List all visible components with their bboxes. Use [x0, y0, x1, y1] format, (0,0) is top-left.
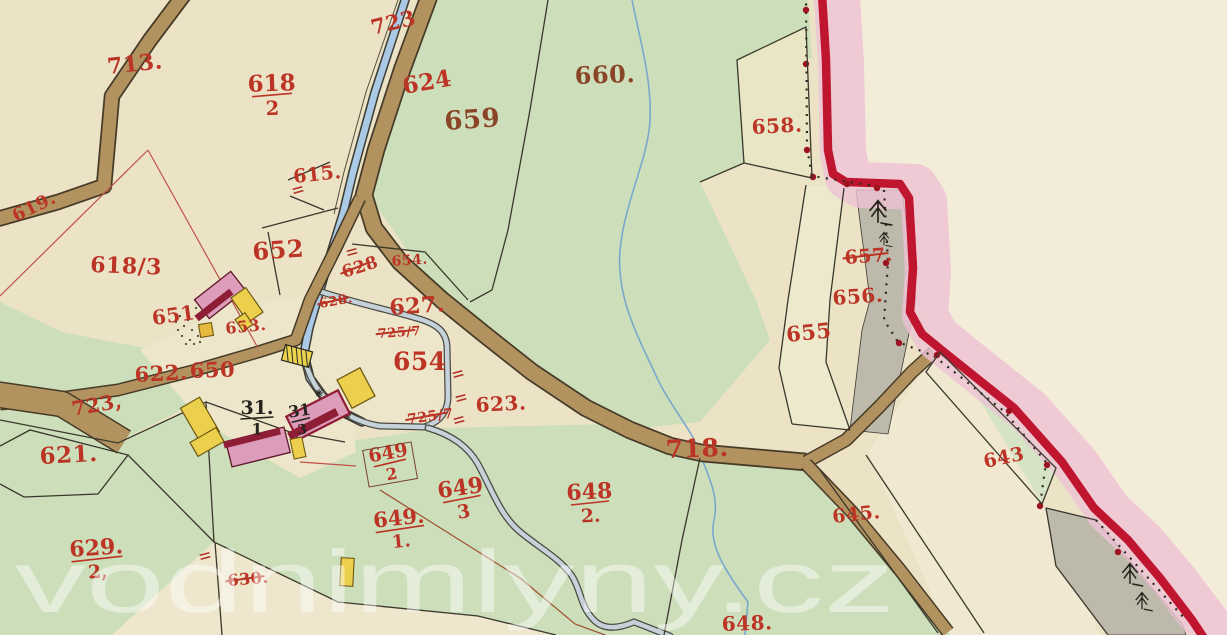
boundary-marker-dot-1 — [803, 61, 809, 67]
svg-text:622.: 622. — [134, 359, 188, 387]
svg-text:718.: 718. — [665, 433, 729, 464]
boundary-marker-dot-10 — [1044, 462, 1050, 468]
garden-stipple-dot-4 — [191, 329, 193, 331]
svg-text:656.: 656. — [832, 283, 884, 310]
svg-text:652: 652 — [251, 233, 305, 266]
svg-text:649.: 649. — [372, 502, 425, 532]
svg-text:660.: 660. — [574, 59, 635, 90]
parcel-number-red-24: 657. — [842, 244, 894, 269]
parcel-number-red-23: 655 — [785, 317, 833, 347]
parcel-number-red-15: 725/7 — [375, 324, 421, 342]
boundary-marker-dot-0 — [803, 7, 809, 13]
svg-text:2.: 2. — [580, 505, 601, 528]
map-canvas[interactable]: 713.723624619.618/3615.652651653.654.627… — [0, 0, 1227, 635]
svg-text:1: 1 — [251, 420, 262, 439]
boundary-marker-dot-12 — [1115, 549, 1121, 555]
parcel-number-red-20: 621. — [39, 440, 98, 470]
parcel-number-red-25: 658. — [751, 112, 803, 139]
garden-stipple-dot-11 — [177, 329, 179, 331]
parcel-number-red-9: 654. — [391, 252, 428, 270]
garden-stipple-dot-9 — [185, 343, 187, 345]
parcel-number-red-13: 654 — [393, 347, 447, 376]
parcel-number-red-14: 623. — [475, 390, 527, 417]
parcel-number-red-6: 652 — [251, 233, 305, 266]
boundary-marker-dot-9 — [1006, 408, 1012, 414]
boundary-marker-dot-2 — [804, 147, 810, 153]
watermark-layer: vodnimlyny.cz — [15, 532, 895, 631]
svg-text:659: 659 — [443, 103, 501, 137]
garden-stipple-dot-15 — [195, 307, 197, 309]
parcel-number-red-4: 618/3 — [90, 252, 163, 280]
svg-text:618/3: 618/3 — [90, 252, 163, 280]
svg-text:658.: 658. — [751, 112, 803, 139]
parcel-number-red-30: 659 — [443, 103, 501, 137]
svg-text:621.: 621. — [39, 440, 98, 470]
parcel-number-red-10: 627. — [389, 291, 446, 321]
svg-text:627.: 627. — [389, 291, 446, 321]
svg-text:2: 2 — [265, 97, 279, 120]
parcel-number-red-17: 622. — [134, 359, 188, 387]
garden-stipple-dot-6 — [181, 335, 183, 337]
boundary-marker-dot-3 — [810, 174, 816, 180]
parcel-number-red-18: 650 — [189, 356, 235, 383]
svg-text:623.: 623. — [475, 390, 527, 417]
garden-stipple-dot-10 — [193, 343, 195, 345]
garden-stipple-dot-7 — [189, 339, 191, 341]
parcel-number-red-31: 660. — [574, 59, 635, 90]
svg-text:654: 654 — [393, 347, 447, 376]
parcel-number-red-21: 718. — [665, 433, 729, 464]
building-wood-small-garden — [198, 322, 213, 337]
svg-text:31.: 31. — [240, 397, 273, 419]
garden-stipple-dot-12 — [199, 341, 201, 343]
garden-stipple-dot-8 — [197, 335, 199, 337]
boundary-marker-dot-4 — [844, 181, 850, 187]
svg-text:650: 650 — [189, 356, 235, 383]
site-watermark-text[interactable]: vodnimlyny.cz — [15, 532, 895, 631]
map-viewport[interactable]: 713.723624619.618/3615.652651653.654.627… — [0, 0, 1227, 635]
boundary-marker-dot-7 — [896, 340, 902, 346]
svg-text:655: 655 — [785, 317, 833, 347]
boundary-marker-dot-5 — [874, 185, 880, 191]
tree-symbol-icon-0 — [315, 389, 323, 397]
svg-text:654.: 654. — [391, 252, 428, 270]
parcel-number-red-22: 656. — [832, 283, 884, 310]
